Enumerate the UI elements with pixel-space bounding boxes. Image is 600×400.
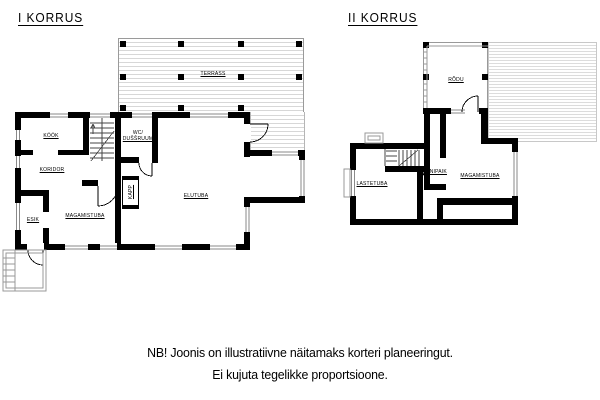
roof-hatch (488, 42, 597, 142)
floor1-title: I KORRUS (18, 10, 83, 25)
room-label-esik: ESIK (27, 217, 39, 223)
floor2-title: II KORRUS (348, 10, 417, 25)
room-label-elutuba: ELUTUBA (184, 193, 208, 199)
room-label-kapp: KAPP (128, 185, 134, 199)
stairs-floor1 (90, 118, 114, 161)
floorplan-page: I KORRUS II KORRUS TERRASS KÖÖK KORIDOR … (0, 0, 600, 400)
porch (3, 250, 46, 291)
room-label-terrass: TERRASS (200, 71, 225, 77)
note-line2: Ei kujuta tegelikke proportsioone. (15, 367, 585, 382)
wc-label-line2: DUŠŠRUUM (123, 136, 154, 142)
room-label-koridor: KORIDOR (40, 167, 65, 173)
terrace-deck-extension (250, 112, 305, 151)
room-label-wc: WC/ DUŠŠRUUM (123, 130, 154, 142)
room-label-magamistuba1: MAGAMISTUBA (65, 213, 104, 219)
room-label-panipaik: PANIPAIK (423, 169, 447, 175)
room-label-rodu: RÕDU (448, 77, 464, 83)
room-label-kook: KÖÖK (43, 133, 58, 139)
note-line1: NB! Joonis on illustratiivne näitamaks k… (15, 345, 585, 360)
room-label-magamistuba2: MAGAMISTUBA (460, 173, 499, 179)
stairs-floor2 (385, 149, 419, 166)
doors-floor1 (28, 124, 268, 265)
room-label-lastetuba: LASTETUBA (357, 181, 388, 187)
